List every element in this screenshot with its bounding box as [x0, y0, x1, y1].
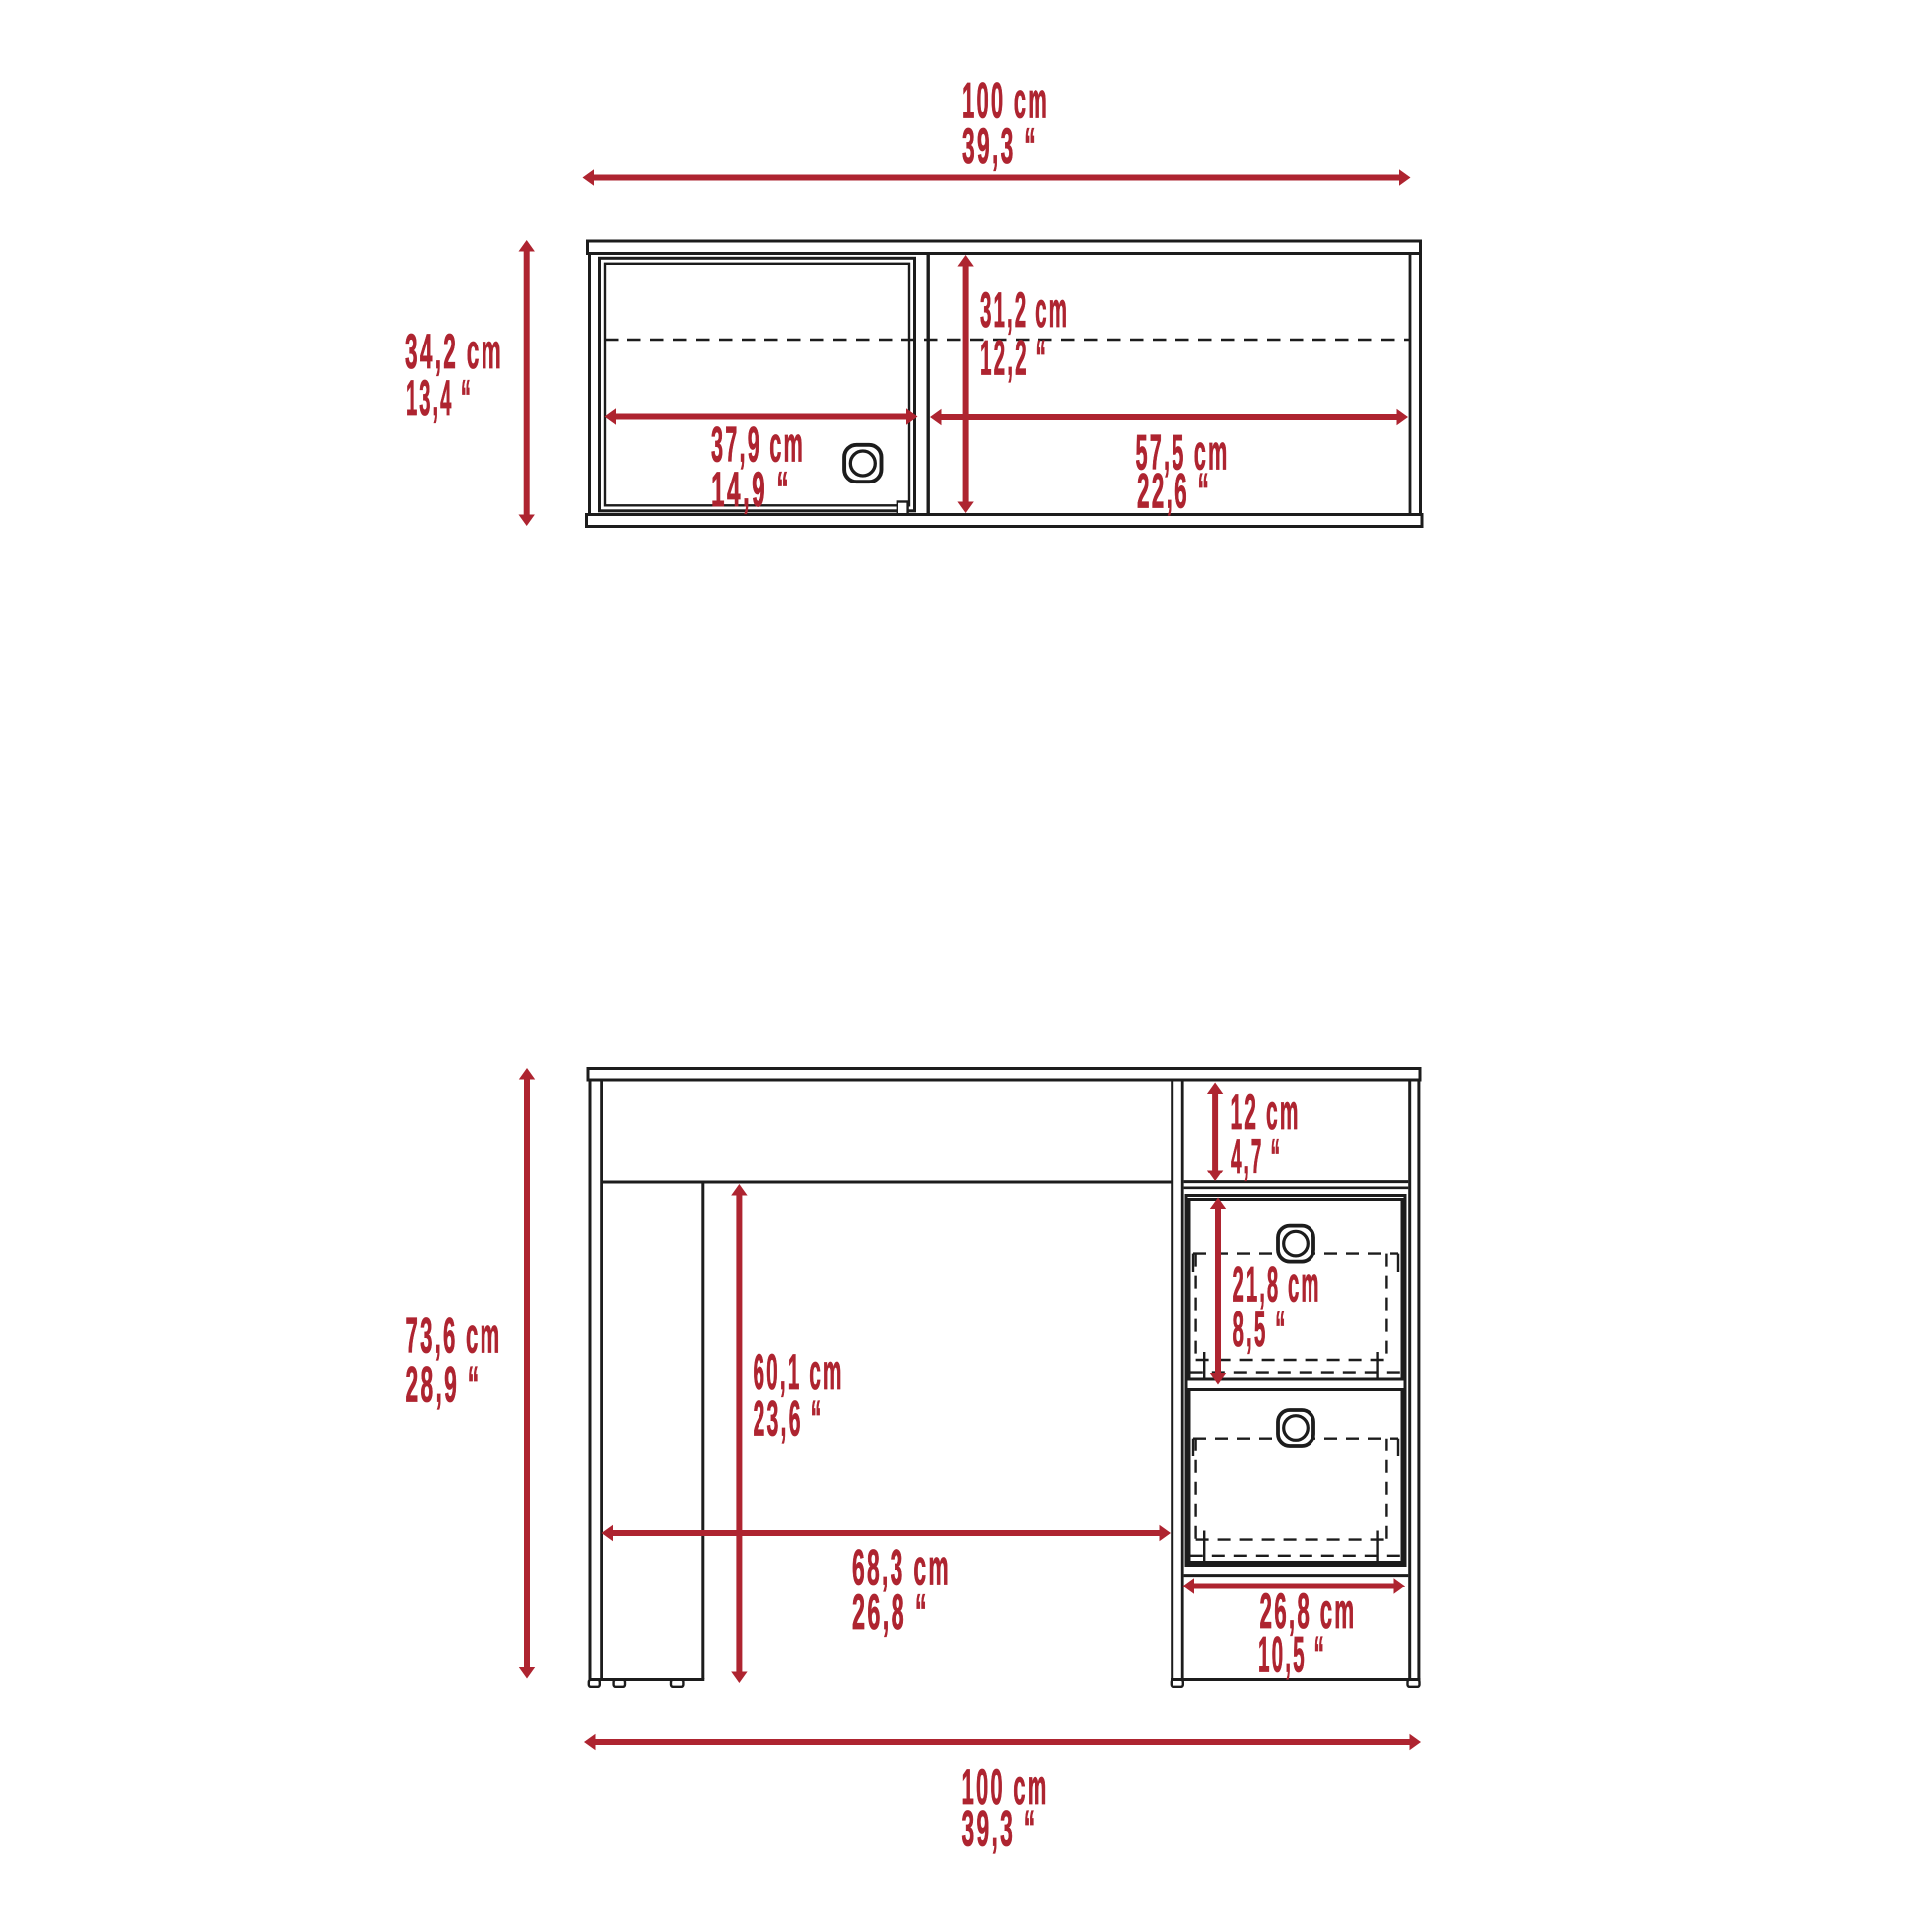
svg-text:28,9 “: 28,9 “ — [406, 1356, 482, 1412]
svg-text:4,7 “: 4,7 “ — [1231, 1129, 1282, 1184]
svg-text:13,4 “: 13,4 “ — [406, 370, 473, 426]
svg-text:39,3 “: 39,3 “ — [962, 1800, 1037, 1856]
svg-text:73,6 cm: 73,6 cm — [406, 1309, 502, 1364]
svg-text:22,6 “: 22,6 “ — [1137, 464, 1211, 519]
svg-text:39,3 “: 39,3 “ — [962, 118, 1037, 174]
svg-text:10,5 “: 10,5 “ — [1258, 1627, 1326, 1683]
svg-text:26,8 “: 26,8 “ — [852, 1585, 929, 1640]
svg-text:8,5 “: 8,5 “ — [1233, 1302, 1288, 1357]
svg-text:14,9 “: 14,9 “ — [711, 462, 791, 517]
svg-text:12,2 “: 12,2 “ — [980, 331, 1048, 386]
svg-text:23,6 “: 23,6 “ — [754, 1391, 824, 1447]
